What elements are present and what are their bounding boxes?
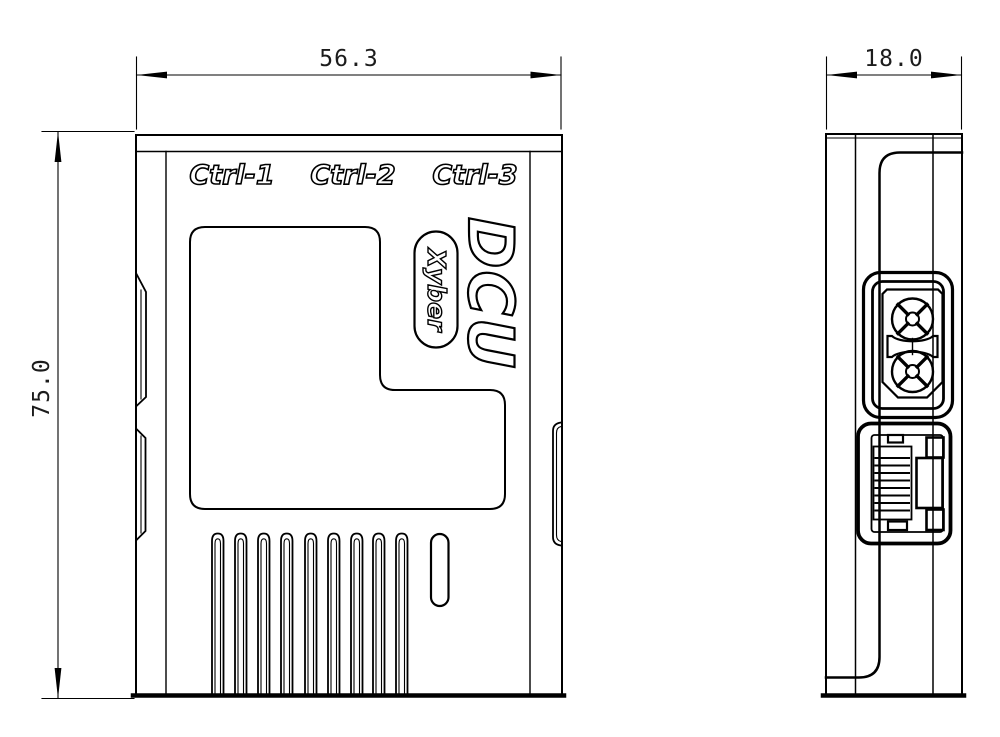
xt30-pin-bottom	[892, 351, 933, 392]
rj45-latch-cavity	[917, 458, 943, 508]
dim-height-value: 75.0	[29, 338, 55, 438]
dim-width-value: 56.3	[299, 46, 399, 72]
dcu-logo: DCU	[461, 217, 519, 367]
port-label-ctrl-1: Ctrl-1	[177, 161, 287, 191]
xt30-pin-top	[892, 299, 933, 340]
vent-slots	[212, 534, 408, 694]
right-clip-tab	[553, 423, 561, 546]
rj45-ethernet-port-icon	[858, 424, 951, 544]
xyber-brand: Xyber	[422, 232, 450, 348]
dimension-height-75	[42, 132, 134, 699]
port-label-ctrl-3: Ctrl-3	[420, 161, 530, 191]
side-view	[823, 134, 964, 696]
side-outer-body	[826, 134, 962, 695]
pill-slot	[431, 534, 449, 606]
left-clip-tabs	[137, 274, 147, 540]
xt30-power-connector-icon	[864, 273, 953, 418]
technical-drawing: 56.3 18.0 75.0 Ctrl-1 Ctrl-2 Ctrl-3 DCU …	[0, 0, 1000, 737]
dim-depth-value: 18.0	[844, 46, 944, 72]
port-label-ctrl-2: Ctrl-2	[298, 161, 408, 191]
